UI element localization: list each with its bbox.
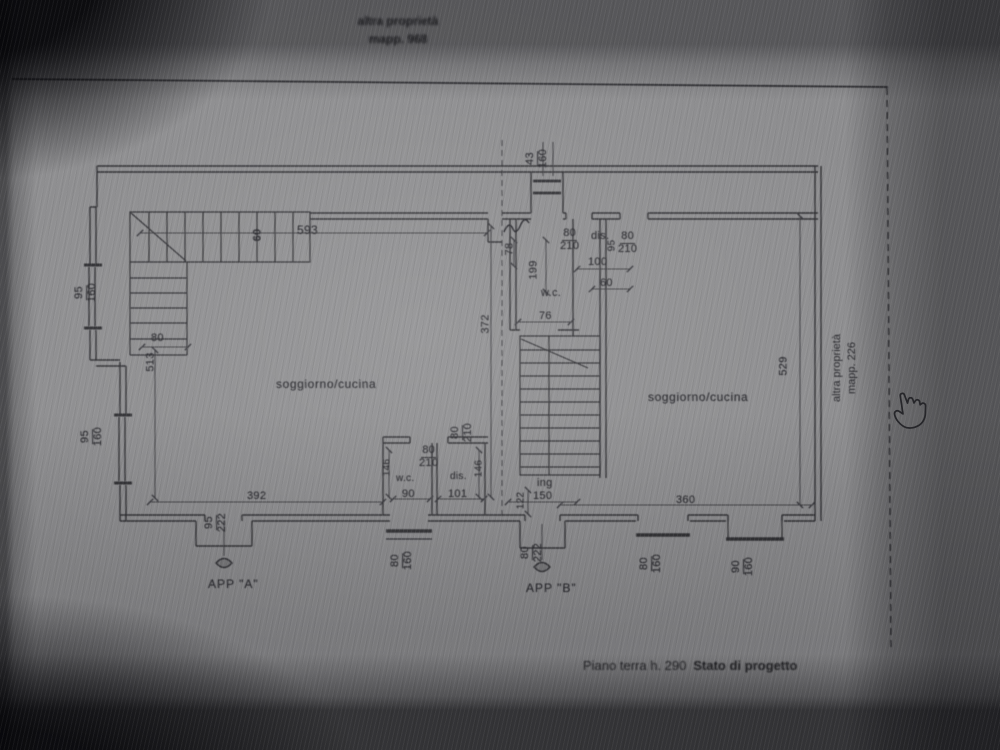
door-label-b1: 80210 (560, 227, 579, 252)
dim-room-b-height: 529 (778, 356, 790, 375)
room-label-living-a: soggiorno/cucina (276, 377, 376, 391)
note-line: altra proprietà (830, 334, 845, 402)
door-label-b2: 80210 (618, 230, 637, 255)
entrance-symbols (216, 521, 550, 572)
room-label-wc-b: w.c. (541, 287, 561, 299)
dim-dis-a-depth: 146 (473, 460, 484, 478)
room-label-wc-a: w.c. (396, 473, 414, 484)
room-label-dis-a: dis. (450, 471, 467, 482)
dimension-lines (140, 142, 812, 514)
room-label-living-b: soggiorno/cucina (648, 390, 748, 404)
dim-dis-b-width: 100 (588, 256, 607, 268)
note-line: mapp. 968 (318, 30, 478, 48)
window-label-top: 43160 (524, 149, 549, 168)
dim-room-a-width: 392 (247, 490, 266, 502)
window-label-wc-a: 80160 (389, 551, 414, 570)
dim-stair-width: 60 (251, 229, 263, 242)
dim-stair-length: 593 (297, 223, 318, 237)
dim-dis-b-depth: 60 (600, 277, 613, 289)
door-label-dis-a: 80210 (449, 423, 474, 442)
dim-wc-b-width: 76 (539, 310, 552, 322)
dim-wc-a-depth: 146 (381, 459, 392, 477)
screen-photo: altra proprietà mapp. 968 593 60 80 513 … (0, 0, 1000, 750)
door-label-app-b: 80222 (519, 543, 544, 562)
window-label-b1: 80160 (638, 554, 663, 573)
drawing-title: Piano terra h. 290Stato di progetto (583, 658, 797, 673)
drawing-title-text: Piano terra h. 290 (583, 658, 686, 673)
door-label-wc-a: 80210 (419, 444, 438, 469)
note-other-property-top: altra proprietà mapp. 968 (318, 12, 478, 48)
floor-plan-layer: altra proprietà mapp. 968 593 60 80 513 … (0, 0, 1000, 750)
dim-mid-height: 372 (480, 314, 492, 333)
dim-stair-exit: 80 (151, 332, 164, 344)
entrance-arrow-a (216, 559, 232, 568)
dim-room-b-width: 360 (676, 494, 695, 506)
dim-left-wall-height: 513 (145, 352, 157, 371)
dim-entry-b-depth: 122 (515, 492, 526, 510)
dim-wc-a-width: 90 (402, 488, 415, 500)
dim-dis-a-width: 101 (448, 488, 467, 500)
window-label-left-top: 95160 (73, 283, 98, 302)
apartment-a-label: APP "A" (208, 577, 259, 591)
window-label-b2: 90160 (730, 557, 755, 576)
dim-entry-b-width: 150 (533, 490, 552, 502)
note-line: altra proprietà (318, 12, 478, 30)
drawing-title-status: Stato di progetto (693, 658, 797, 673)
dim-dis-b-height: 95 (606, 240, 617, 252)
dim-niche-depth: 78 (503, 243, 515, 256)
note-line: mapp. 226 (845, 334, 860, 402)
window-label-left-bottom: 95160 (79, 427, 104, 446)
note-other-property-right: altra proprietà mapp. 226 (830, 334, 860, 402)
hand-cursor-icon (888, 382, 930, 434)
room-label-entry-b: ing (537, 477, 553, 489)
entrance-arrow-b (534, 563, 550, 572)
dim-wc-b-length: 199 (528, 260, 540, 279)
apartment-b-label: APP "B" (526, 581, 577, 595)
stairs-apartment-b (520, 336, 600, 475)
door-label-app-a: 95222 (203, 513, 228, 532)
